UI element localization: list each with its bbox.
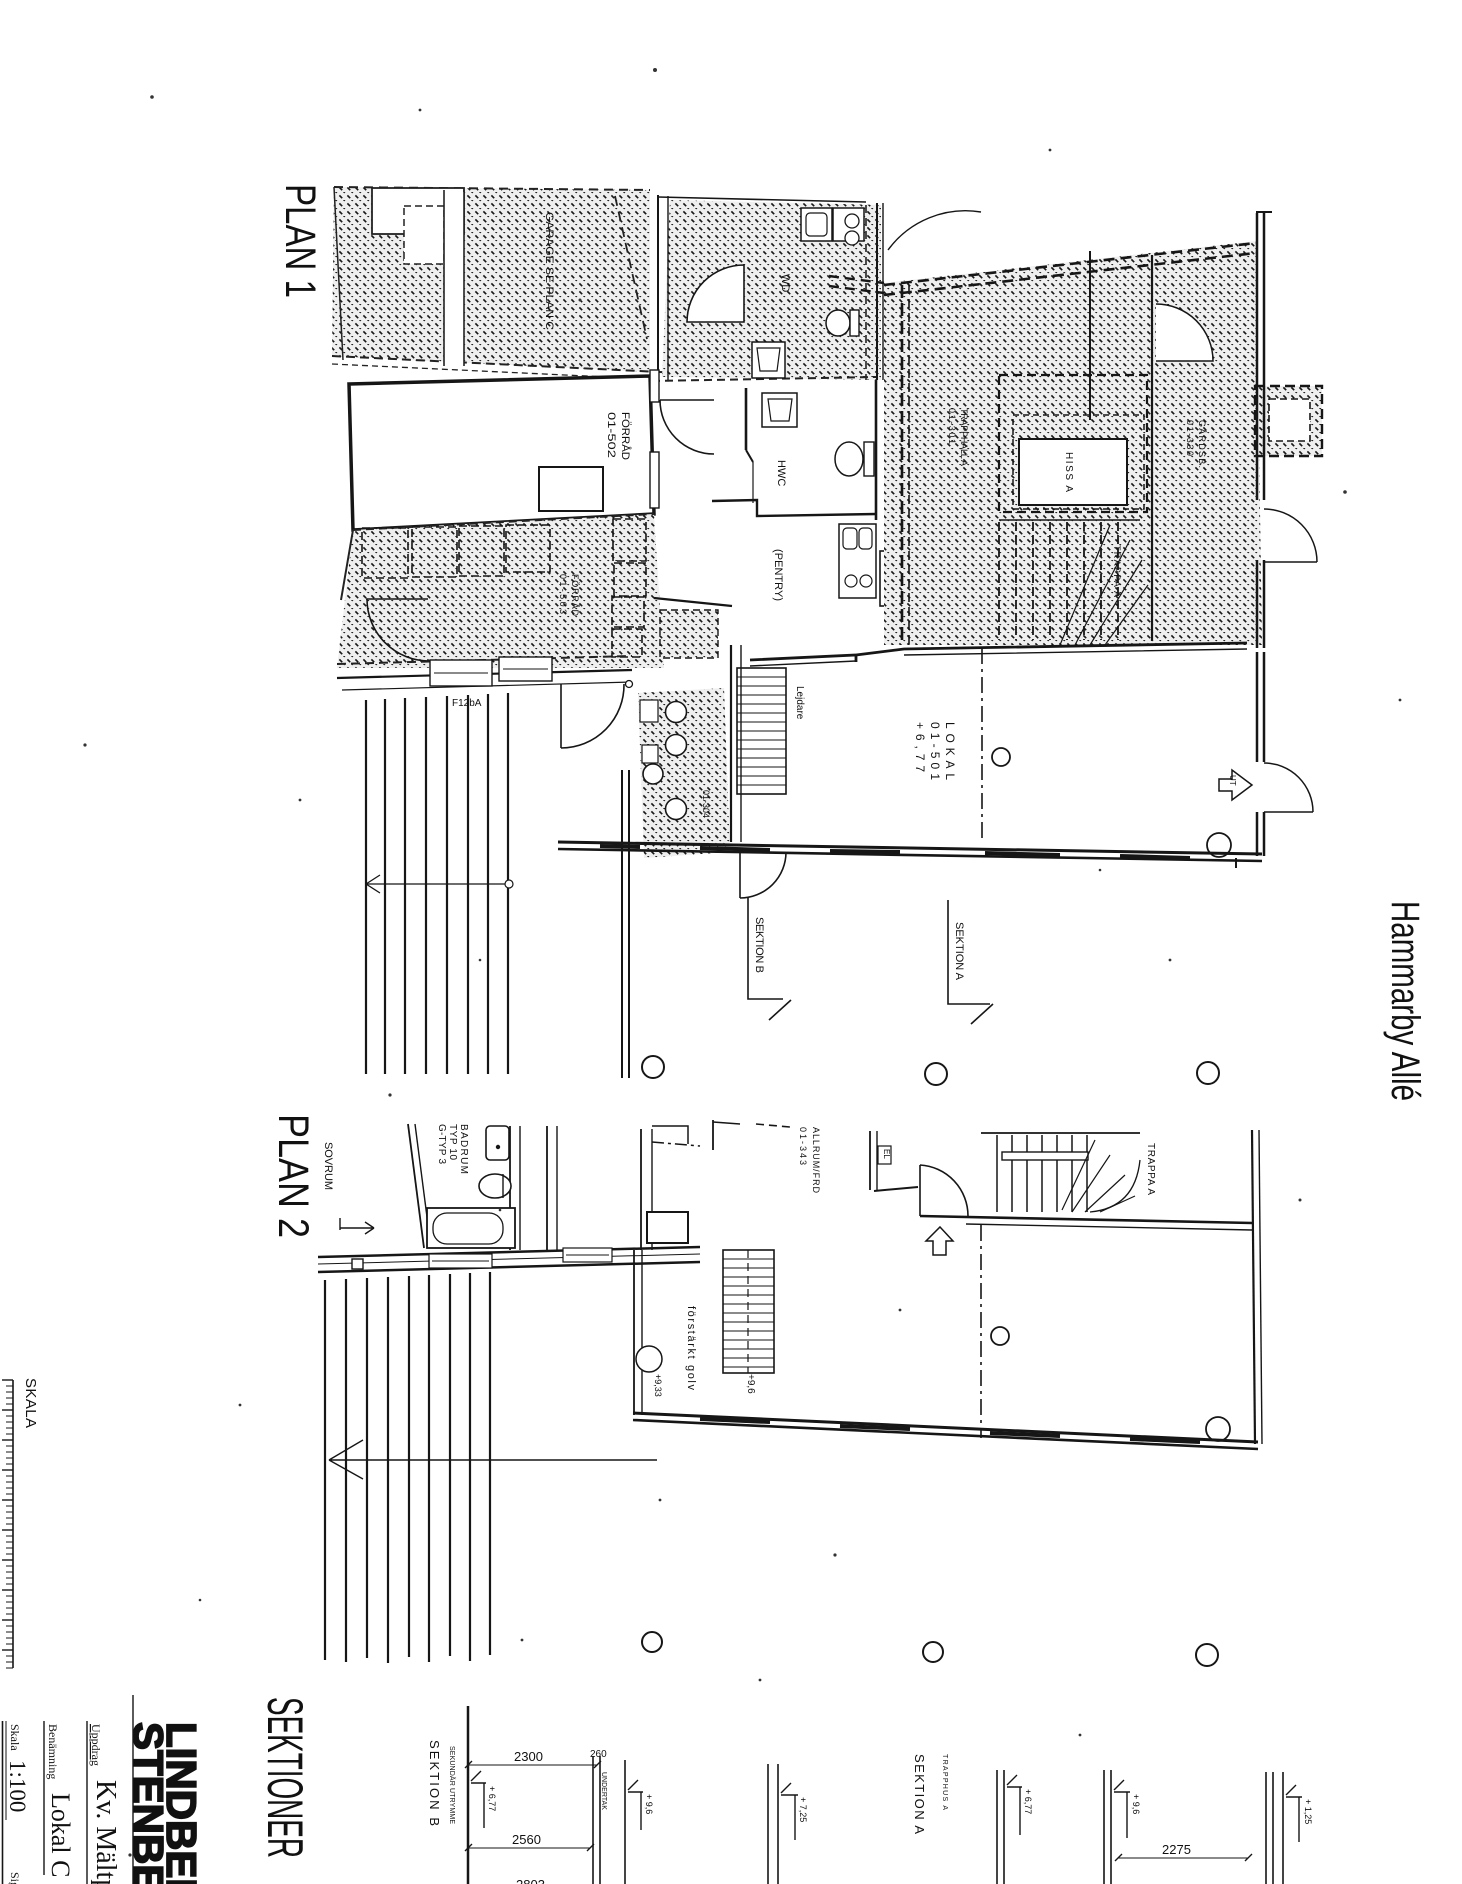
svg-text:01-304: 01-304 (701, 790, 711, 818)
svg-text:EL: EL (882, 1149, 891, 1159)
svg-text:TRAPPA A: TRAPPA A (1112, 545, 1122, 597)
svg-text:Skala: Skala (8, 1724, 22, 1751)
svg-text:SEKTIONER: SEKTIONER (257, 1697, 313, 1858)
svg-text:SEKTION B: SEKTION B (427, 1740, 442, 1826)
svg-text:Uppdrag: Uppdrag (89, 1724, 103, 1766)
svg-text:+9,33: +9,33 (653, 1374, 663, 1397)
svg-text:FÖRRÅD: FÖRRÅD (570, 574, 580, 617)
svg-text:2803: 2803 (516, 1877, 545, 1884)
svg-text:UNDERTAK: UNDERTAK (600, 1772, 607, 1810)
svg-text:UT: UT (1228, 775, 1237, 786)
svg-text:SEKUNDÄR UTRYMME: SEKUNDÄR UTRYMME (448, 1746, 456, 1824)
svg-text:260: 260 (590, 1749, 607, 1760)
svg-text:BADRUM: BADRUM (458, 1124, 469, 1174)
svg-text:SOVRUM: SOVRUM (322, 1142, 334, 1190)
svg-text:TRAPPA A: TRAPPA A (1145, 1143, 1156, 1195)
svg-text:+ 7,25: + 7,25 (798, 1797, 808, 1822)
svg-text:TRAPPHUS A: TRAPPHUS A (941, 1754, 948, 1810)
svg-text:PLAN 2: PLAN 2 (269, 1114, 317, 1238)
svg-text:FÖRRÅD: FÖRRÅD (619, 412, 632, 460)
svg-text:ALLRUM/FRD: ALLRUM/FRD (811, 1127, 821, 1194)
svg-text:+ 6,77: + 6,77 (487, 1786, 497, 1811)
svg-text:PLAN 1: PLAN 1 (276, 184, 324, 298)
svg-text:+ 9,6: + 9,6 (1131, 1794, 1141, 1814)
svg-text:Sign: Sign (8, 1872, 22, 1884)
svg-text:Lokal C: Lokal C (46, 1793, 75, 1878)
svg-text:Kv. Mältp: Kv. Mältp (90, 1780, 121, 1884)
svg-text:SEKTION A: SEKTION A (953, 922, 965, 981)
svg-text:TYP 10: TYP 10 (447, 1124, 458, 1160)
svg-text:2300: 2300 (514, 1749, 543, 1764)
svg-text:G-TYP 3: G-TYP 3 (436, 1124, 447, 1164)
svg-text:STENBERG: STENBERG (125, 1722, 172, 1884)
svg-text:Hammarby Allé: Hammarby Allé (1383, 901, 1427, 1101)
svg-text:WD: WD (779, 274, 791, 292)
svg-text:F12bA: F12bA (452, 698, 482, 709)
svg-text:SEKTION B: SEKTION B (753, 917, 765, 973)
svg-text:SKALA: SKALA (22, 1378, 39, 1428)
svg-text:1:100: 1:100 (5, 1760, 30, 1812)
svg-text:TRAPPHALL A: TRAPPHALL A (959, 408, 969, 466)
svg-text:Benämning: Benämning (46, 1724, 60, 1779)
svg-text:SEKTION A: SEKTION A (912, 1754, 927, 1834)
svg-text:förstärkt golv: förstärkt golv (685, 1306, 697, 1391)
svg-text:01-502: 01-502 (605, 412, 617, 458)
svg-text:2275: 2275 (1162, 1842, 1191, 1857)
svg-text:Lejdare: Lejdare (794, 686, 805, 720)
svg-text:(PENTRY): (PENTRY) (772, 549, 784, 601)
svg-text:+9,6: +9,6 (745, 1374, 756, 1394)
svg-text:HWC: HWC (775, 460, 787, 486)
svg-text:+ 1,25: + 1,25 (1303, 1799, 1313, 1824)
svg-text:GARAGE SE PLAN C: GARAGE SE PLAN C (543, 212, 555, 330)
svg-text:+ 6,77: + 6,77 (1023, 1789, 1033, 1814)
svg-text:2560: 2560 (512, 1832, 541, 1847)
svg-text:+ 9,6: + 9,6 (644, 1794, 654, 1814)
